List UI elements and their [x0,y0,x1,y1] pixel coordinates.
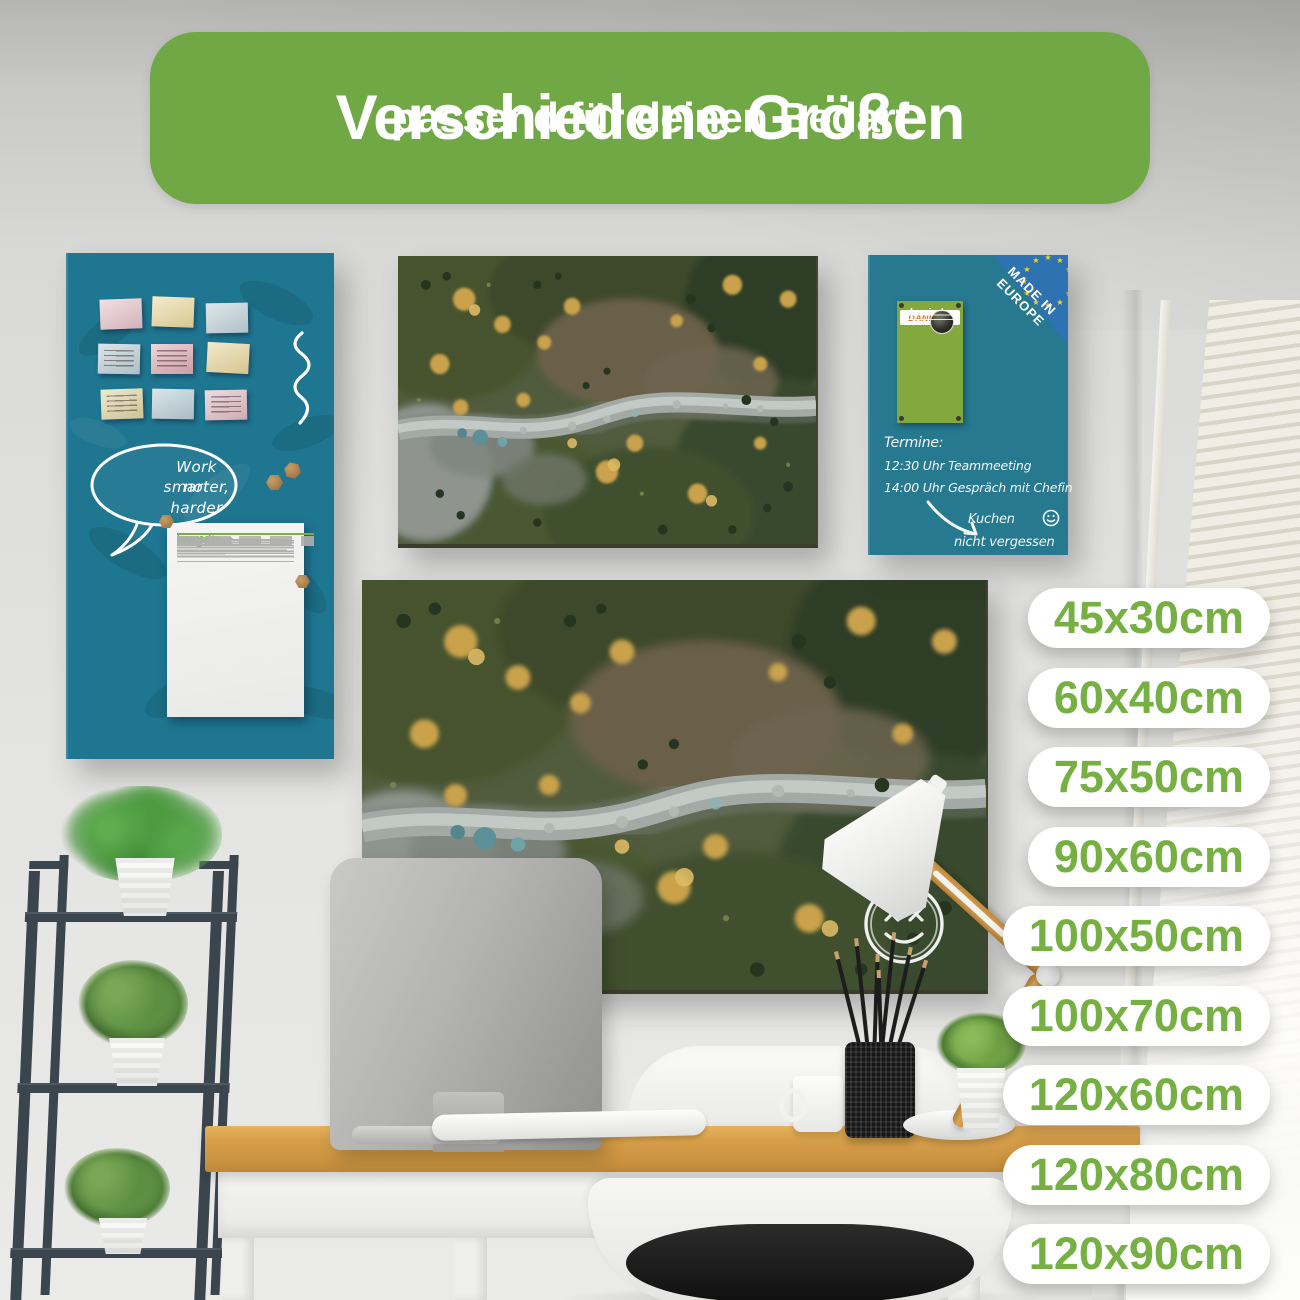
memo-board-large-teal: Work smarter, not harder Angebot banjado [66,253,334,759]
chair-cushion [626,1224,974,1300]
desk-leg [455,1238,487,1300]
potted-plant [78,960,188,1048]
size-badge: 60x40cm [1028,668,1270,728]
size-badge: 120x90cm [1003,1224,1270,1284]
memo-board-small-teal: ★★★ ★★★ ★★★ ★★★ MADE IN EUROPE banjado D… [868,255,1068,555]
page-subtitle: passend für deinen Bedarf [391,94,908,142]
size-badge: 120x80cm [1003,1145,1270,1205]
handwritten-note: Kuchen [968,512,1015,527]
handwritten-note: Termine: [884,435,943,451]
label-pin [899,416,904,421]
computer-monitor [330,858,602,1150]
svg-text:★: ★ [1065,265,1068,274]
size-badge: 90x60cm [1028,827,1270,887]
desk-lamp-joint [1036,963,1060,987]
pencils [838,925,930,1050]
smiley-icon [1042,509,1060,527]
chair-seat [588,1178,1012,1300]
sticky-note [206,342,250,374]
desk-leg [222,1238,254,1300]
sticky-note [206,303,249,334]
label-pin [956,416,961,421]
document-divider [177,533,314,535]
speech-bubble-text: Work smarter, not harder [96,457,230,477]
sticky-note [99,298,142,329]
svg-text:★: ★ [1056,256,1063,265]
size-badge: 100x50cm [1003,906,1270,966]
mug [793,1076,843,1132]
svg-text:★: ★ [1032,256,1039,265]
shelf-frame [29,861,68,869]
pencil [877,970,884,1050]
label-pin [899,303,904,308]
size-badge: 100x70cm [1003,986,1270,1046]
header-banner: Verschiedene Größen passend für deinen B… [150,32,1150,204]
pinboard-forest-small [398,256,818,548]
squiggle-doodle-icon [284,331,314,427]
potted-plant [64,1148,170,1228]
bubble-line-2: not harder [163,477,230,518]
sticky-note [100,388,143,419]
svg-text:★: ★ [1065,289,1068,298]
svg-text:★: ★ [1044,255,1051,262]
sticky-note [151,296,194,327]
sticky-note [98,344,141,375]
size-badge: 45x30cm [1028,588,1270,648]
label-pin [956,303,961,308]
handwritten-note: 14:00 Uhr Gespräch mit Chefin [884,480,1072,495]
sticky-note [151,344,193,374]
sticky-note [152,389,195,420]
sticky-note [205,390,248,421]
offer-document: Angebot banjado [167,523,304,717]
product-marketing-image: Verschiedene Größen passend für deinen B… [0,0,1300,1300]
document-footer-columns [177,536,314,546]
aerial-forest-river-photo [398,256,816,544]
handwritten-note: 12:30 Uhr Teammeeting [884,458,1031,473]
size-badge: 75x50cm [1028,747,1270,807]
size-badge: 120x60cm [1003,1065,1270,1125]
label-text-lines [904,310,957,320]
handwritten-note: nicht vergessen [954,535,1055,550]
banjado-label: banjado DANKE!!! [897,301,963,423]
